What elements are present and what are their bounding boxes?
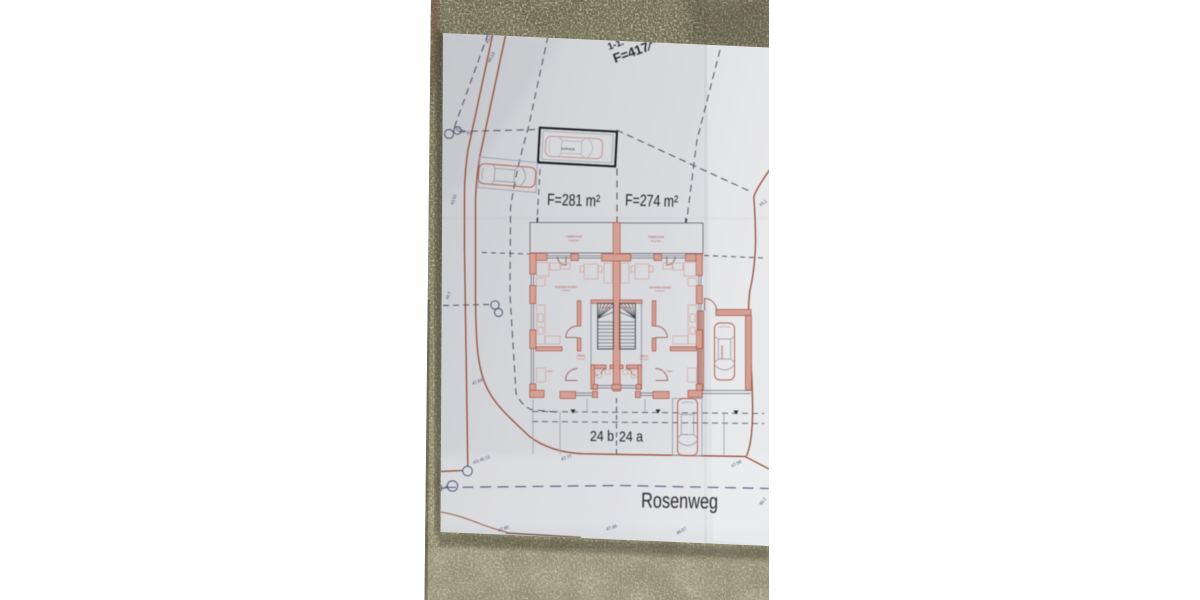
svg-text:GARD.: GARD.	[667, 370, 674, 373]
svg-text:GARAGE: GARAGE	[720, 345, 724, 358]
svg-text:F=6.1m²: F=6.1m²	[577, 358, 585, 361]
svg-text:AB 15St: AB 15St	[601, 306, 611, 310]
svg-text:TERRASSE: TERRASSE	[648, 235, 664, 239]
svg-text:WC: WC	[633, 374, 637, 377]
svg-text:F=28.4m²: F=28.4m²	[561, 289, 571, 292]
svg-text:F=281 m²: F=281 m²	[547, 191, 601, 210]
svg-text:Rosenweg: Rosenweg	[641, 489, 718, 514]
svg-text:F=6.1m²: F=6.1m²	[640, 358, 648, 361]
svg-text:F=28.4m²: F=28.4m²	[655, 290, 665, 293]
svg-text:WOHNEN-ESSEN: WOHNEN-ESSEN	[649, 286, 671, 290]
svg-text:WOHNEN-ESSEN: WOHNEN-ESSEN	[555, 285, 577, 289]
svg-text:F=12.5m²: F=12.5m²	[569, 240, 580, 243]
svg-text:F=274 m²: F=274 m²	[625, 192, 679, 211]
svg-text:DIELE: DIELE	[640, 354, 648, 358]
svg-text:24 a: 24 a	[619, 429, 644, 446]
svg-text:WC: WC	[596, 374, 600, 377]
svg-text:GARD.: GARD.	[547, 370, 554, 373]
svg-text:TERRASSE: TERRASSE	[566, 235, 582, 239]
svg-text:AB 15St: AB 15St	[623, 306, 633, 310]
svg-text:F=12.5m²: F=12.5m²	[651, 240, 662, 243]
svg-text:GARAGE: GARAGE	[561, 147, 575, 152]
svg-text:24 b: 24 b	[590, 428, 614, 445]
svg-text:DIELE: DIELE	[577, 354, 585, 358]
